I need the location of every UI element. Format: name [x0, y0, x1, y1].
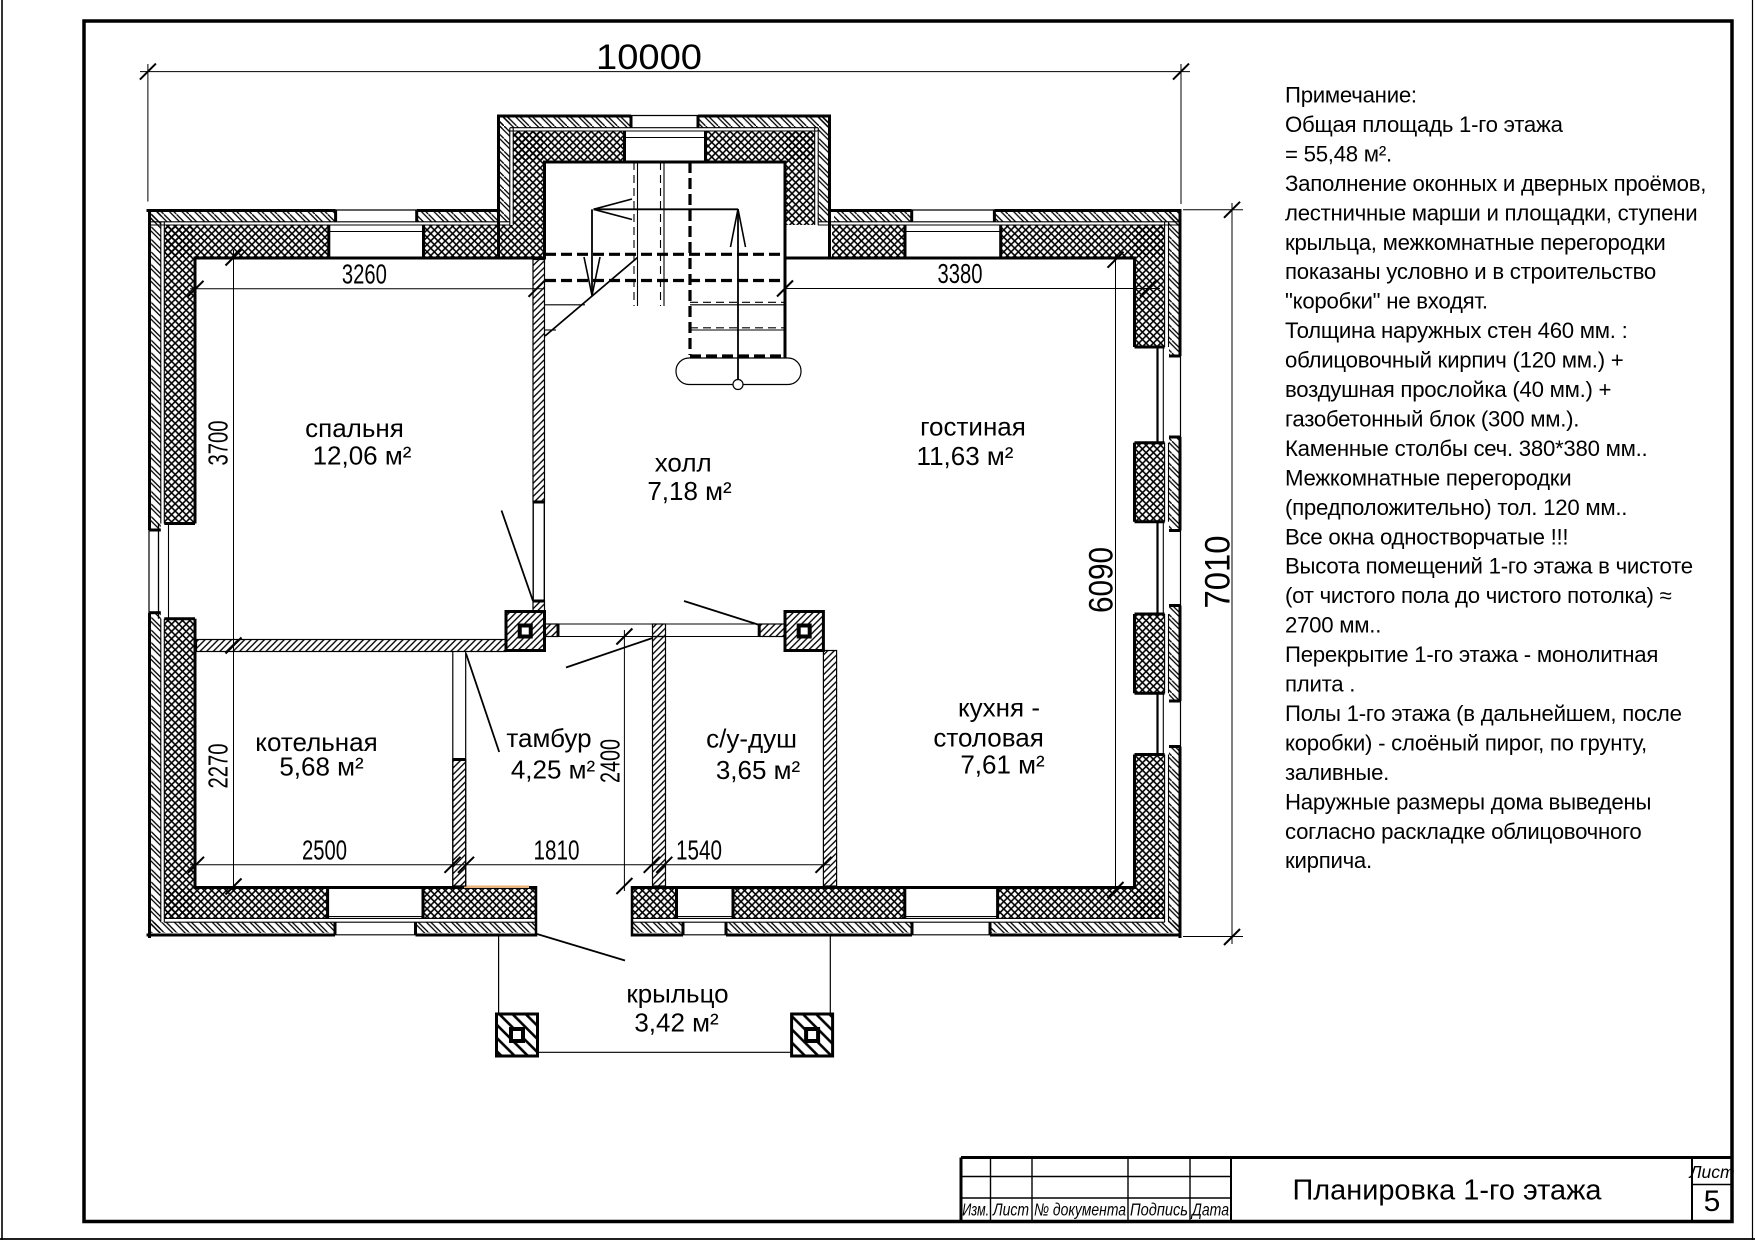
svg-text:газобетонный блок (300 мм.).: газобетонный блок (300 мм.).	[1285, 406, 1579, 431]
svg-text:гостиная: гостиная	[920, 412, 1026, 442]
svg-text:7,18 м²: 7,18 м²	[647, 476, 732, 506]
svg-text:5,68 м²: 5,68 м²	[279, 751, 364, 781]
svg-text:Полы 1-го этажа (в дальнейшем,: Полы 1-го этажа (в дальнейшем, после	[1285, 701, 1682, 726]
svg-text:№ документа: № документа	[1034, 1200, 1126, 1220]
svg-text:1540: 1540	[676, 834, 722, 865]
svg-text:2700 мм..: 2700 мм..	[1285, 613, 1381, 638]
svg-text:Заполнение оконных и дверных п: Заполнение оконных и дверных проёмов,	[1285, 171, 1706, 196]
svg-text:Толщина наружных стен 460 мм.: Толщина наружных стен 460 мм. :	[1285, 318, 1628, 343]
svg-text:Каменные столбы сеч. 380*380 м: Каменные столбы сеч. 380*380 мм..	[1285, 436, 1647, 461]
svg-text:крыльца, межкомнатные перегоро: крыльца, межкомнатные перегородки	[1285, 230, 1666, 255]
svg-text:3260: 3260	[342, 258, 387, 289]
svg-text:с/у-душ: с/у-душ	[706, 724, 797, 754]
svg-text:воздушная прослойка (40 мм.) +: воздушная прослойка (40 мм.) +	[1285, 377, 1611, 402]
svg-text:холл: холл	[655, 448, 712, 478]
svg-text:= 55,48 м².: = 55,48 м².	[1285, 141, 1392, 166]
svg-text:показаны условно и в строитель: показаны условно и в строительство	[1285, 259, 1656, 284]
svg-text:Лист: Лист	[992, 1200, 1029, 1220]
svg-text:"коробки" не входят.: "коробки" не входят.	[1285, 289, 1488, 314]
svg-text:крыльцо: крыльцо	[626, 979, 728, 1009]
svg-text:Планировка 1-го этажа: Планировка 1-го этажа	[1293, 1175, 1603, 1207]
svg-text:заливные.: заливные.	[1285, 760, 1389, 785]
svg-text:3,42 м²: 3,42 м²	[634, 1008, 719, 1038]
svg-text:облицовочный кирпич (120 мм.): облицовочный кирпич (120 мм.) +	[1285, 348, 1623, 373]
svg-text:5: 5	[1704, 1185, 1721, 1218]
svg-text:2270: 2270	[203, 744, 234, 789]
svg-text:спальня: спальня	[305, 413, 404, 443]
svg-text:Общая площадь 1-го этажа: Общая площадь 1-го этажа	[1285, 112, 1564, 137]
svg-text:11,63 м²: 11,63 м²	[917, 441, 1014, 471]
svg-text:Наружные размеры дома выведены: Наружные размеры дома выведены	[1285, 789, 1651, 814]
svg-text:Все окна одностворчатые !!!: Все окна одностворчатые !!!	[1285, 524, 1568, 549]
svg-text:3700: 3700	[203, 421, 234, 466]
svg-text:тамбур: тамбур	[506, 723, 591, 753]
svg-text:2400: 2400	[595, 739, 626, 783]
svg-text:плита .: плита .	[1285, 672, 1355, 697]
svg-text:3,65 м²: 3,65 м²	[716, 755, 801, 785]
svg-text:согласно раскладке облицовочно: согласно раскладке облицовочного	[1285, 819, 1642, 844]
svg-text:Подпись: Подпись	[1130, 1200, 1188, 1220]
svg-text:7,61 м²: 7,61 м²	[960, 750, 1045, 780]
svg-text:(от чистого пола до чистого по: (от чистого пола до чистого потолка) ≈	[1285, 583, 1672, 608]
svg-text:6090: 6090	[1083, 547, 1121, 613]
svg-text:(предположительно) тол. 120 мм: (предположительно) тол. 120 мм..	[1285, 495, 1627, 520]
svg-text:кухня -: кухня -	[958, 693, 1040, 723]
svg-text:кирпича.: кирпича.	[1285, 848, 1372, 873]
svg-text:12,06 м²: 12,06 м²	[313, 441, 412, 471]
svg-text:лестничные марши и площадки, с: лестничные марши и площадки, ступени	[1285, 200, 1697, 225]
svg-text:Перекрытие 1-го этажа - моноли: Перекрытие 1-го этажа - монолитная	[1285, 642, 1658, 667]
svg-text:коробки) - слоёный пирог, по г: коробки) - слоёный пирог, по грунту,	[1285, 730, 1647, 755]
svg-text:4,25 м²: 4,25 м²	[511, 755, 596, 785]
svg-text:Примечание:: Примечание:	[1285, 83, 1417, 108]
svg-text:2500: 2500	[302, 834, 347, 865]
svg-text:7010: 7010	[1199, 536, 1238, 609]
svg-text:Межкомнатные перегородки: Межкомнатные перегородки	[1285, 465, 1571, 490]
svg-text:столовая: столовая	[933, 723, 1044, 753]
svg-text:3380: 3380	[938, 258, 983, 289]
svg-text:Изм.: Изм.	[962, 1200, 989, 1220]
svg-text:Лист: Лист	[1688, 1162, 1734, 1182]
svg-text:Высота помещений 1-го этажа в: Высота помещений 1-го этажа в чистоте	[1285, 554, 1693, 579]
svg-text:10000: 10000	[596, 38, 702, 77]
svg-text:Дата: Дата	[1190, 1200, 1229, 1220]
svg-text:1810: 1810	[534, 834, 580, 865]
